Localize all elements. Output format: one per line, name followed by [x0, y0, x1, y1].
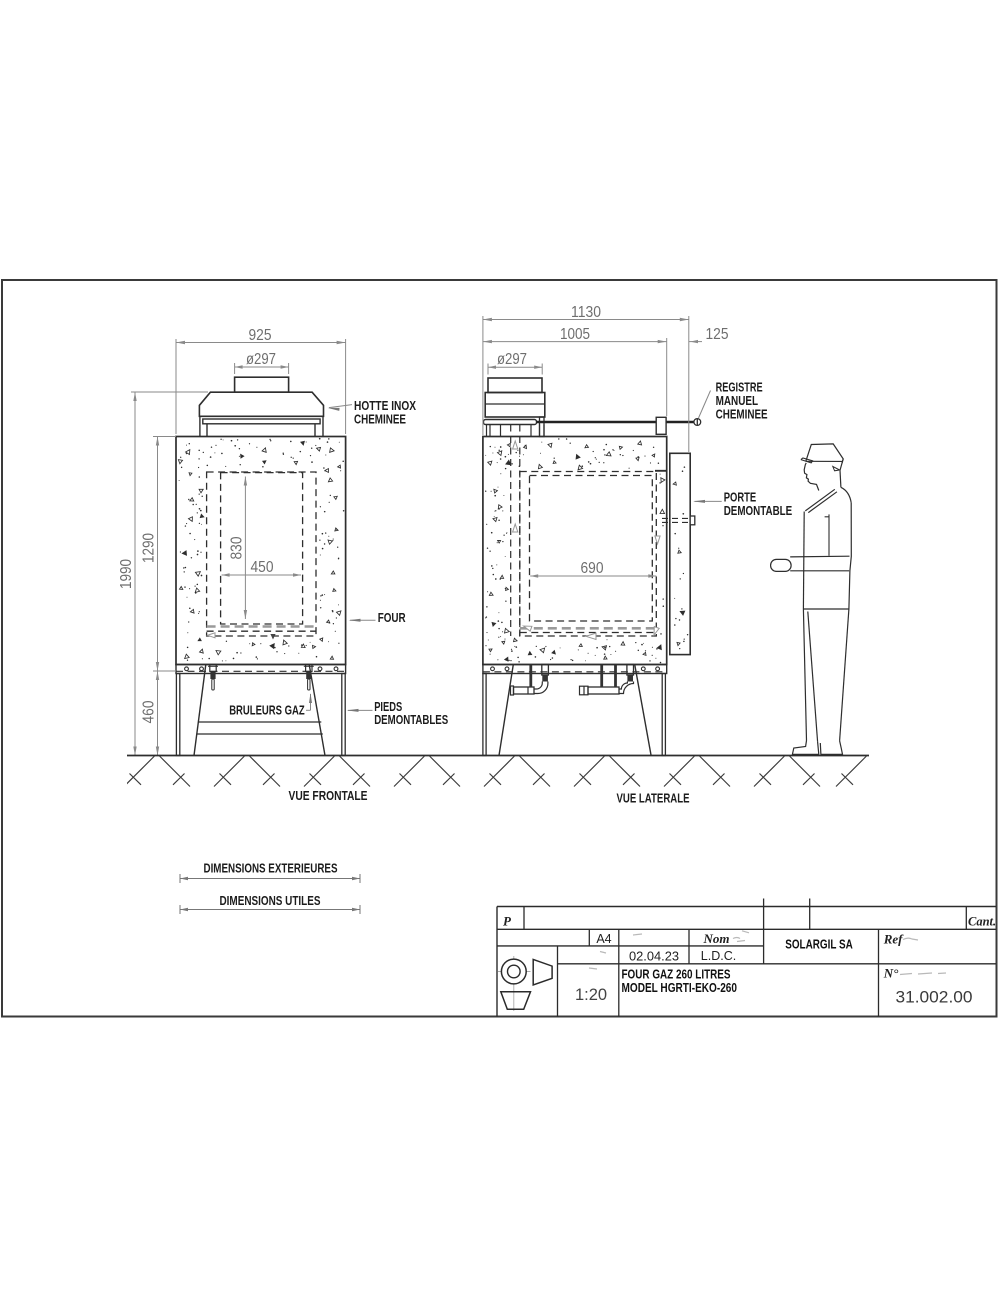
svg-text:1290: 1290: [141, 533, 158, 563]
svg-text:FOUR GAZ 260 LITRES: FOUR GAZ 260 LITRES: [622, 967, 731, 981]
svg-text:ø297: ø297: [246, 351, 276, 368]
svg-text:N°: N°: [883, 966, 899, 981]
svg-text:Nom: Nom: [703, 931, 730, 946]
svg-text:1130: 1130: [571, 304, 601, 321]
svg-text:450: 450: [251, 559, 274, 576]
svg-text:CHEMINEE: CHEMINEE: [716, 408, 768, 422]
svg-text:MODEL HGRTI-EKO-260: MODEL HGRTI-EKO-260: [622, 981, 738, 995]
svg-text:02.04.23: 02.04.23: [629, 949, 679, 963]
svg-text:VUE FRONTALE: VUE FRONTALE: [289, 788, 368, 803]
svg-text:Cant.: Cant.: [968, 914, 996, 928]
svg-text:Ref: Ref: [883, 932, 904, 947]
svg-text:L.D.C.: L.D.C.: [701, 949, 736, 963]
svg-text:FOUR: FOUR: [378, 611, 406, 625]
svg-text:DEMONTABLE: DEMONTABLE: [724, 504, 793, 518]
svg-text:31.002.00: 31.002.00: [896, 988, 973, 1006]
svg-text:BRULEURS GAZ: BRULEURS GAZ: [229, 704, 305, 718]
svg-text:DEMONTABLES: DEMONTABLES: [374, 713, 448, 727]
svg-text:PIEDS: PIEDS: [374, 700, 402, 714]
svg-text:DIMENSIONS EXTERIEURES: DIMENSIONS EXTERIEURES: [204, 862, 338, 876]
svg-text:1990: 1990: [118, 559, 135, 589]
svg-text:1:20: 1:20: [575, 986, 607, 1004]
svg-text:460: 460: [141, 700, 158, 723]
svg-text:1005: 1005: [560, 326, 590, 343]
svg-text:CHEMINEE: CHEMINEE: [354, 412, 406, 426]
svg-text:125: 125: [706, 326, 729, 343]
svg-text:925: 925: [249, 327, 272, 344]
svg-text:PORTE: PORTE: [724, 490, 757, 504]
svg-text:690: 690: [581, 560, 604, 577]
svg-text:A4: A4: [596, 932, 611, 946]
svg-text:REGISTRE: REGISTRE: [716, 381, 763, 395]
svg-text:SOLARGIL SA: SOLARGIL SA: [785, 937, 853, 952]
svg-text:ø297: ø297: [497, 351, 527, 368]
svg-text:MANUEL: MANUEL: [716, 394, 759, 408]
svg-text:830: 830: [229, 536, 246, 559]
svg-text:HOTTE INOX: HOTTE INOX: [354, 399, 417, 413]
svg-text:VUE LATERALE: VUE LATERALE: [617, 791, 690, 806]
svg-text:P: P: [503, 914, 512, 929]
svg-text:DIMENSIONS UTILES: DIMENSIONS UTILES: [220, 894, 321, 908]
